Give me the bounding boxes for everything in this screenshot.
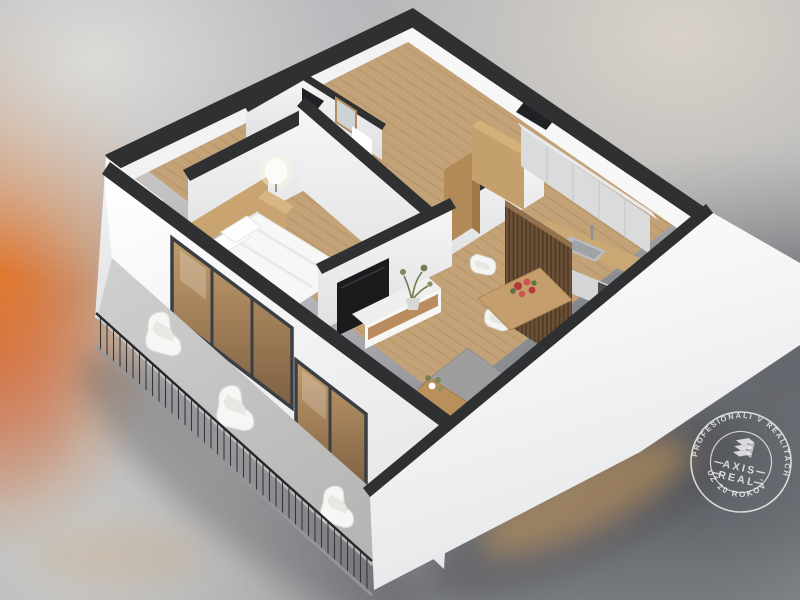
stamp-dash xyxy=(756,471,765,473)
faucet-head xyxy=(590,225,594,229)
plant-pot xyxy=(406,298,420,310)
table-lamp xyxy=(265,158,287,184)
floorplan-render: PROFESIONÁLI V REALITÁCH UŽ 20 ROKOV AXI… xyxy=(0,0,800,600)
